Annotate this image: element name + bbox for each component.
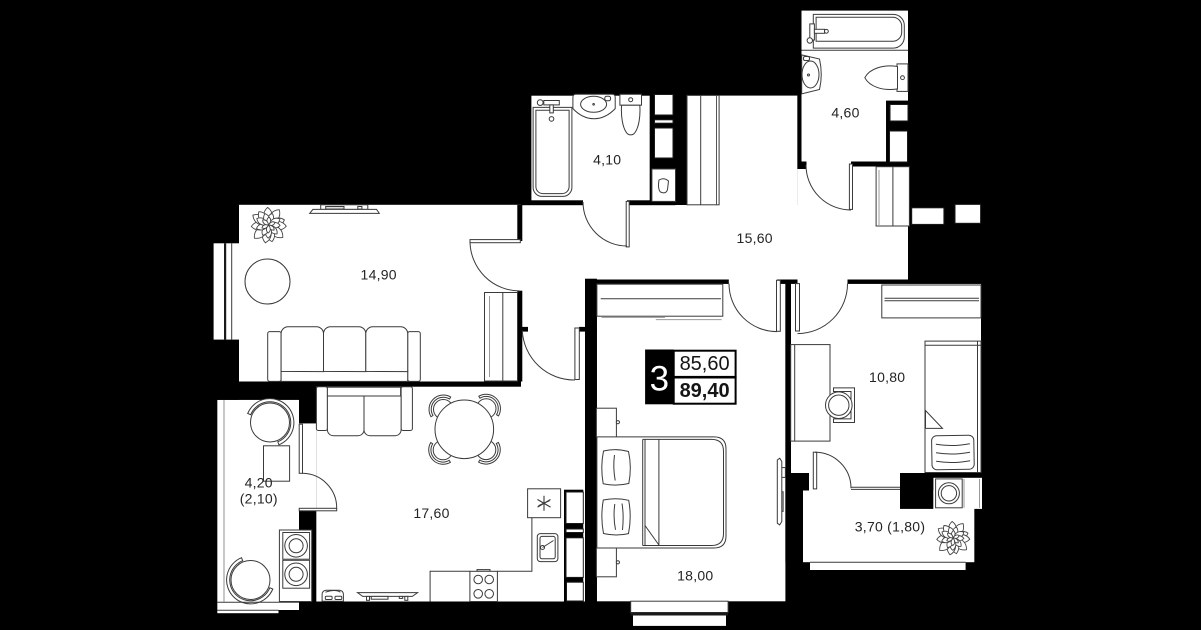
svg-text:10,80: 10,80 bbox=[869, 369, 905, 385]
svg-text:3,70 (1,80): 3,70 (1,80) bbox=[855, 519, 925, 535]
svg-text:15,60: 15,60 bbox=[737, 230, 773, 246]
svg-text:4,20: 4,20 bbox=[245, 474, 273, 490]
svg-text:14,90: 14,90 bbox=[361, 266, 397, 282]
svg-text:3: 3 bbox=[650, 360, 669, 399]
svg-text:4,10: 4,10 bbox=[593, 151, 621, 167]
svg-text:89,40: 89,40 bbox=[680, 380, 730, 402]
svg-text:18,00: 18,00 bbox=[677, 568, 713, 584]
svg-text:(2,10): (2,10) bbox=[240, 491, 278, 507]
svg-text:4,60: 4,60 bbox=[831, 104, 859, 120]
svg-text:17,60: 17,60 bbox=[413, 505, 449, 521]
svg-text:85,60: 85,60 bbox=[680, 353, 730, 375]
